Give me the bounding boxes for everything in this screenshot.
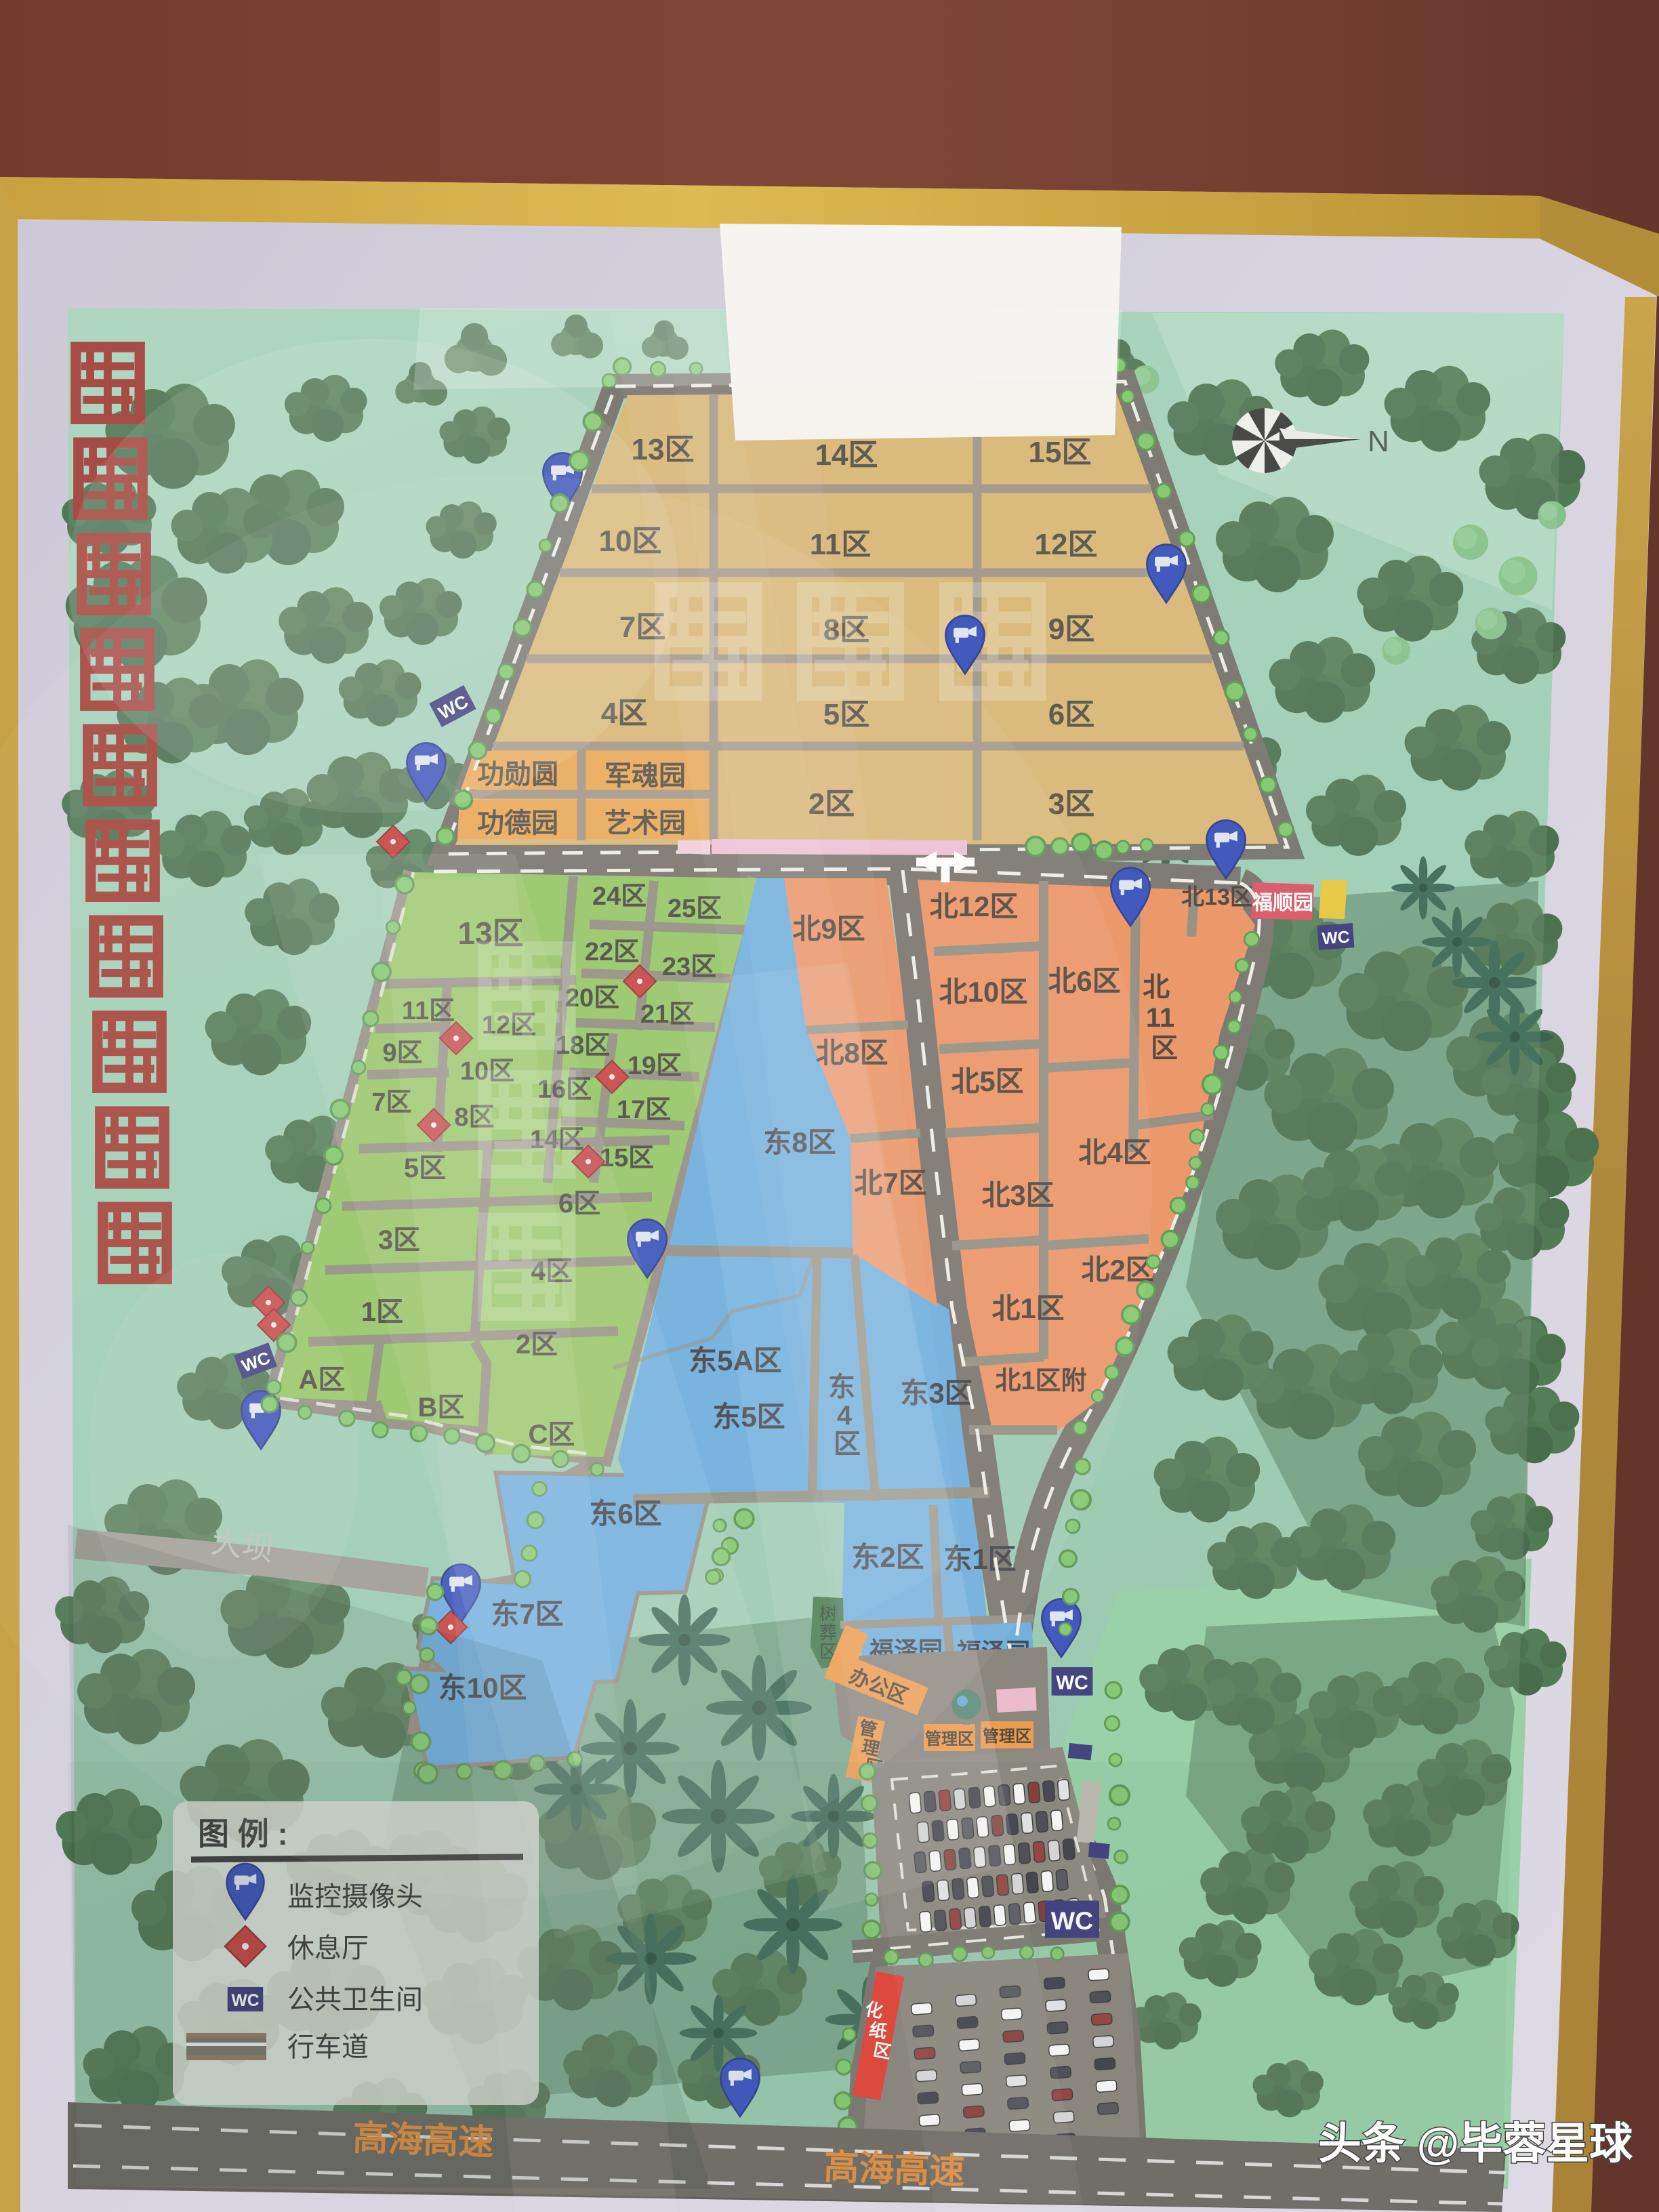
svg-text:头条 @毕蓉星球: 头条 @毕蓉星球 xyxy=(1318,2119,1633,2168)
